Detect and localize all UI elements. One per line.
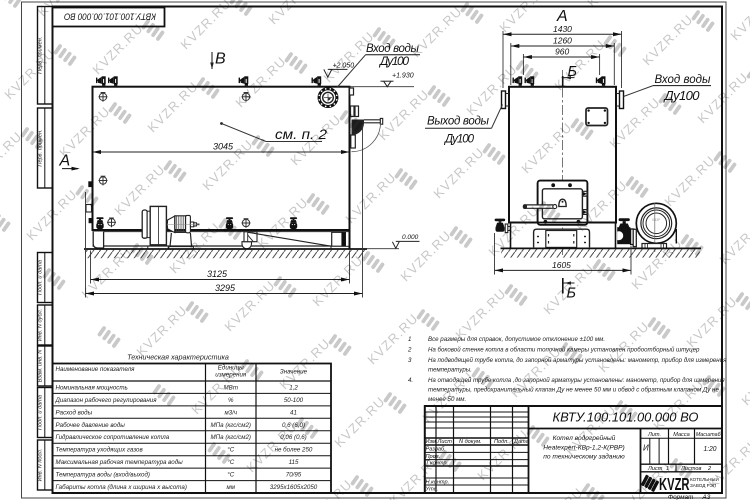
svg-text:Н.контр.: Н.контр.: [426, 479, 450, 485]
svg-text:°С: °С: [227, 447, 234, 454]
svg-text:2: 2: [407, 347, 412, 354]
svg-text:1260: 1260: [553, 36, 572, 46]
svg-text:КВЗР: КВЗР: [652, 218, 660, 222]
svg-text:температуры, предохранительный: температуры, предохранительный клапан Ду…: [428, 387, 719, 394]
svg-text:Расход воды: Расход воды: [56, 409, 93, 416]
svg-text:70/95: 70/95: [286, 472, 302, 479]
svg-text:960: 960: [555, 47, 569, 57]
svg-text:Взам. инв. N: Взам. инв. N: [38, 349, 44, 383]
svg-text:КВТУ.100.101.00.000 ВО: КВТУ.100.101.00.000 ВО: [64, 12, 156, 22]
svg-text:°С: °С: [227, 459, 234, 466]
svg-text:МПа (кгс/см2): МПа (кгс/см2): [211, 434, 251, 441]
svg-text:3125: 3125: [207, 269, 228, 279]
svg-text:по техническому заданию: по техническому заданию: [543, 453, 625, 461]
svg-text:4.: 4.: [408, 377, 413, 384]
svg-text:Гидравлическое сопротивление к: Гидравлическое сопротивление котла: [56, 434, 170, 441]
svg-text:И: И: [643, 444, 649, 453]
svg-text:1605: 1605: [552, 260, 571, 270]
svg-text:Инв. N дубл.: Инв. N дубл.: [38, 309, 44, 341]
svg-text:Изм.: Изм.: [426, 439, 438, 445]
svg-text:Утв.: Утв.: [425, 487, 439, 493]
svg-text:В: В: [215, 50, 226, 67]
svg-text:1430: 1430: [553, 24, 572, 34]
svg-text:Номинальная мощность: Номинальная мощность: [56, 384, 128, 391]
svg-text:Разраб.: Разраб.: [426, 447, 446, 453]
svg-text:Формат: Формат: [668, 494, 694, 500]
svg-text:Габариты котла (длина х ширина: Габариты котла (длина х ширина х высота): [56, 484, 187, 491]
svg-text:Масштаб: Масштаб: [696, 432, 722, 438]
svg-text:+1.930: +1.930: [392, 73, 414, 80]
svg-text:Рабочее давление воды: Рабочее давление воды: [56, 422, 126, 429]
svg-text:°С: °С: [227, 472, 234, 479]
svg-text:м3/ч: м3/ч: [224, 409, 237, 416]
svg-text:N докум.: N докум.: [459, 439, 482, 445]
svg-text:50-100: 50-100: [284, 397, 304, 404]
svg-text:МПа (кгс/см2): МПа (кгс/см2): [211, 422, 251, 429]
svg-text:Температура воды (вход/выход): Температура воды (вход/выход): [56, 472, 150, 479]
svg-text:%: %: [228, 397, 234, 404]
svg-text:Температура уходящих газов: Температура уходящих газов: [56, 447, 144, 454]
svg-text:1: 1: [408, 336, 411, 343]
svg-text:Лит.: Лит.: [647, 432, 661, 438]
svg-text:Инв. N подл.: Инв. N подл.: [38, 449, 44, 482]
svg-text:Подп. и дата: Подп. и дата: [38, 260, 44, 295]
svg-text:3: 3: [408, 357, 412, 364]
svg-text:3295х1605х2050: 3295х1605х2050: [270, 484, 318, 491]
svg-text:0.000: 0.000: [402, 234, 419, 241]
svg-text:Максимальная рабочая температу: Максимальная рабочая температура воды: [56, 459, 184, 466]
svg-text:Наименование показателя: Наименование показателя: [56, 366, 136, 373]
svg-text:Ду100: Ду100: [378, 54, 409, 68]
svg-text:А3: А3: [702, 494, 711, 500]
svg-text:41: 41: [290, 409, 297, 416]
svg-text:Ду100: Ду100: [443, 134, 475, 146]
svg-text:3295: 3295: [215, 283, 236, 293]
svg-text:мм: мм: [227, 484, 236, 491]
svg-text:Подп. и дата: Подп. и дата: [38, 395, 44, 430]
svg-text:Все размеры для справок, допус: Все размеры для справок, допустимое откл…: [428, 336, 605, 343]
svg-text:Лист: Лист: [437, 439, 453, 445]
svg-text:Вход воды: Вход воды: [655, 74, 712, 86]
svg-text:115: 115: [289, 459, 299, 466]
svg-text:1:20: 1:20: [704, 444, 718, 453]
svg-text:А: А: [556, 8, 568, 25]
svg-text:Масса: Масса: [673, 432, 690, 438]
svg-text:Диапазон рабочего регулировани: Диапазон рабочего регулирования: [55, 397, 158, 404]
svg-text:Выход воды: Выход воды: [427, 115, 490, 127]
